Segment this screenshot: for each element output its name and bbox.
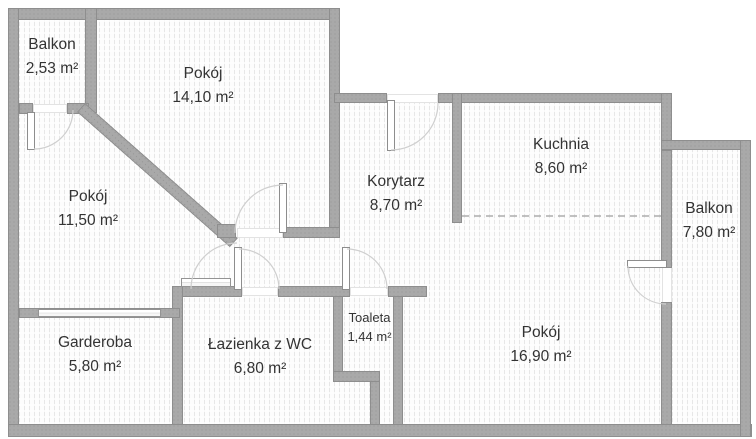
door-leaf-balcony-north [27,112,35,150]
room-label-garderoba: Garderoba 5,80 m² [45,331,145,379]
floor-balcony-east [672,150,740,424]
wall-balcony-east-right [740,140,751,437]
door-opening [350,287,388,296]
room-area: 11,50 m² [38,209,138,233]
door-leaf-balcony-east [627,260,667,268]
room-area: 5,80 m² [45,355,145,379]
wall-bathroom-left [172,286,183,425]
sliding-door-hall [181,278,231,287]
room-label-balkon-north: Balkon 2,53 m² [6,33,98,81]
floor-plan: Balkon 2,53 m² Pokój 14,10 m² Pokój 11,5… [0,0,756,439]
room-area: 8,70 m² [346,194,446,218]
room-label-kuchnia: Kuchnia 8,60 m² [511,133,611,181]
room-name: Łazienka z WC [195,333,325,357]
wall-corridor-top-right [438,93,662,103]
room-label-toaleta: Toaleta 1,44 m² [332,308,407,346]
room-area: 2,53 m² [6,57,98,81]
wall-room-north-bottom [283,227,340,238]
room-name: Kuchnia [511,133,611,157]
wall-outer-bottom [8,424,752,437]
wall-corridor-kitchen-divider [452,93,462,223]
room-area: 16,90 m² [491,345,591,369]
room-name: Korytarz [346,170,446,194]
room-name: Pokój [38,185,138,209]
wall-diagonal-corner [217,224,236,238]
door-opening [242,287,278,296]
door-opening [237,228,283,238]
room-area: 14,10 m² [153,86,253,110]
room-name: Pokój [491,321,591,345]
wall-balcony-east-top [661,140,751,150]
room-label-pokoj-west: Pokój 11,50 m² [38,185,138,233]
room-label-pokoj-north: Pokój 14,10 m² [153,62,253,110]
room-area: 1,44 m² [332,327,407,346]
wall-shaft-left [370,381,380,425]
door-opening [33,104,67,113]
door-leaf-toilet [342,247,350,290]
door-leaf-entrance [387,100,395,151]
room-label-korytarz: Korytarz 8,70 m² [346,170,446,218]
room-label-balkon-east: Balkon 7,80 m² [663,197,755,245]
room-name: Toaleta [332,308,407,327]
room-name: Garderoba [45,331,145,355]
wall-outer-top [8,8,340,20]
wall-corridor-top-left [334,93,387,103]
wall-balcony-east-divider-lower [661,302,672,425]
door-leaf-bathroom [234,247,242,290]
room-name: Pokój [153,62,253,86]
door-leaf-room-north [279,183,287,233]
room-name: Balkon [663,197,755,221]
door-opening [662,267,672,303]
room-label-pokoj-south: Pokój 16,90 m² [491,321,591,369]
sliding-door-wardrobe [38,309,161,317]
room-label-lazienka: Łazienka z WC 6,80 m² [195,333,325,381]
room-area: 7,80 m² [663,221,755,245]
room-area: 8,60 m² [511,157,611,181]
room-area: 6,80 m² [195,357,325,381]
wall-room-north-right [329,8,340,238]
room-name: Balkon [6,33,98,57]
